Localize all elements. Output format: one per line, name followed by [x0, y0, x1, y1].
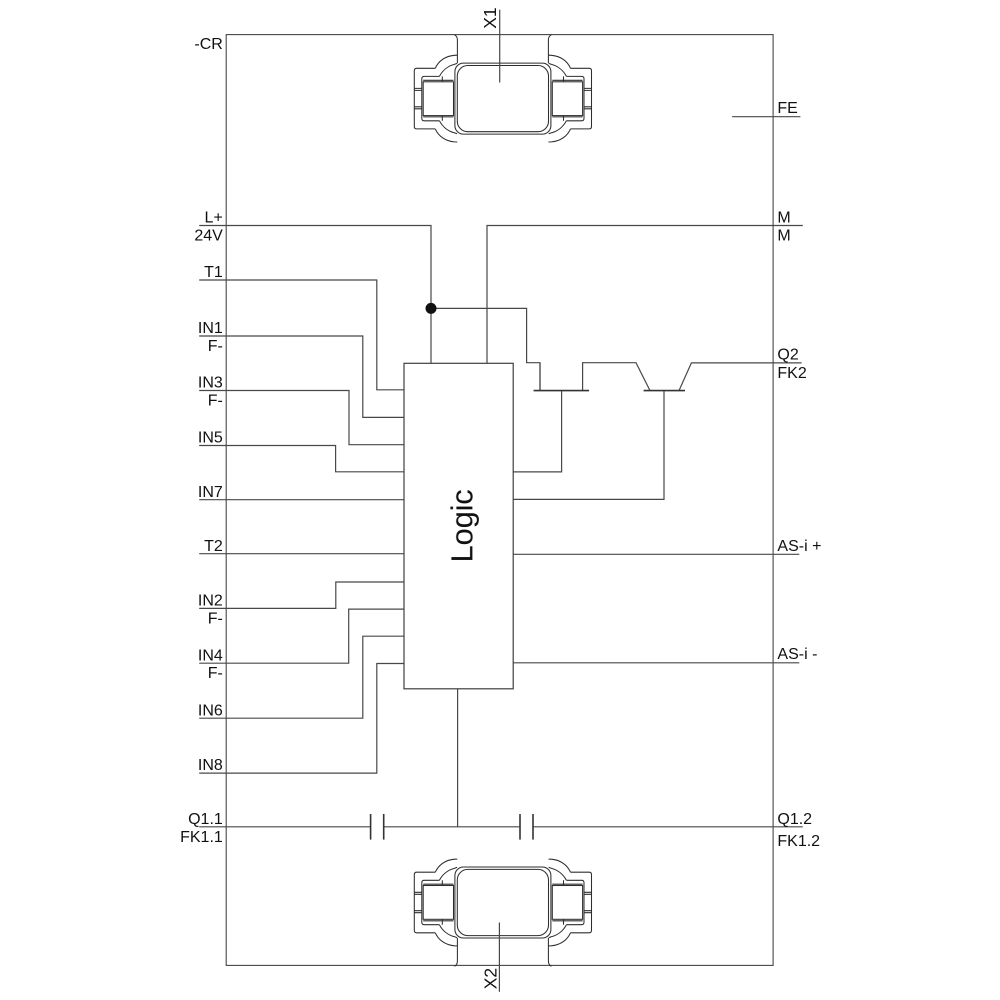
svg-text:IN1: IN1: [198, 320, 223, 337]
svg-text:IN8: IN8: [198, 757, 223, 774]
svg-text:L+: L+: [205, 209, 223, 226]
svg-text:FK2: FK2: [777, 365, 806, 382]
svg-text:IN2: IN2: [198, 593, 223, 610]
svg-text:M: M: [777, 228, 790, 245]
svg-text:F-: F-: [208, 665, 223, 682]
svg-text:Q1.1: Q1.1: [188, 811, 223, 828]
svg-text:X1: X1: [480, 7, 500, 28]
svg-text:24V: 24V: [194, 228, 223, 245]
svg-text:T1: T1: [204, 264, 223, 281]
svg-text:F-: F-: [208, 393, 223, 410]
svg-text:FK1.1: FK1.1: [180, 829, 223, 846]
svg-text:FK1.2: FK1.2: [777, 833, 820, 850]
svg-text:-CR: -CR: [194, 36, 222, 53]
svg-text:F-: F-: [208, 610, 223, 627]
svg-text:IN5: IN5: [198, 430, 223, 447]
svg-text:AS-i -: AS-i -: [777, 646, 817, 663]
svg-text:Q1.2: Q1.2: [777, 811, 812, 828]
svg-text:X2: X2: [480, 968, 500, 989]
svg-text:IN3: IN3: [198, 375, 223, 392]
svg-text:FE: FE: [777, 100, 797, 117]
svg-text:Logic: Logic: [444, 489, 479, 562]
svg-text:F-: F-: [208, 338, 223, 355]
svg-text:M: M: [777, 209, 790, 226]
svg-text:IN6: IN6: [198, 702, 223, 719]
svg-text:AS-i +: AS-i +: [777, 538, 821, 555]
svg-text:IN7: IN7: [198, 484, 223, 501]
svg-text:IN4: IN4: [198, 647, 223, 664]
svg-text:Q2: Q2: [777, 347, 798, 364]
svg-text:T2: T2: [204, 538, 223, 555]
